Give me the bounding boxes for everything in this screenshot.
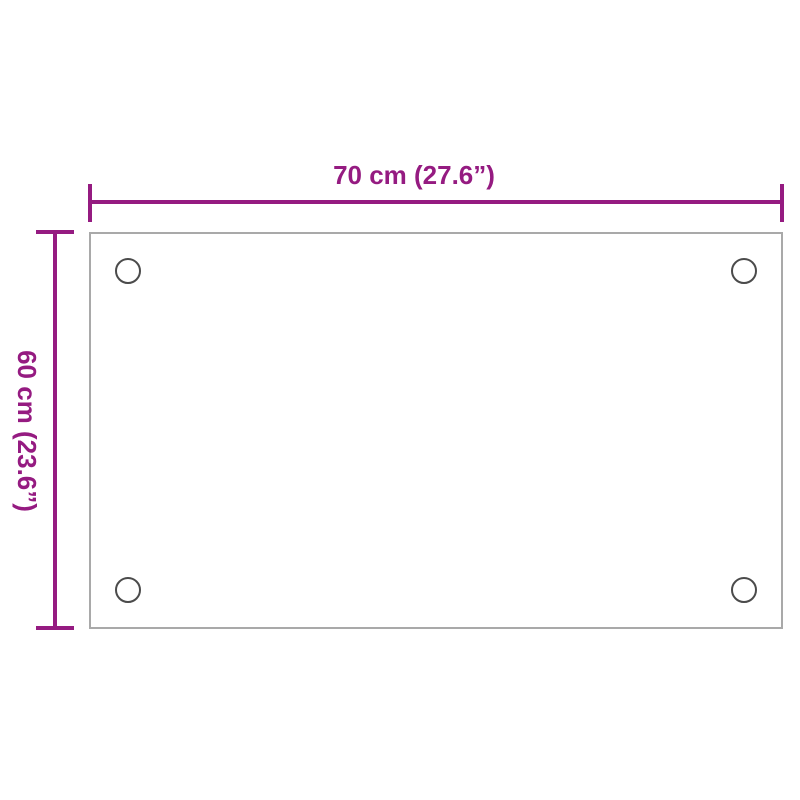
height-dimension-top-tick [36, 230, 74, 234]
mounting-hole-top-right-icon [731, 258, 757, 284]
width-dimension-right-tick [780, 184, 784, 222]
mounting-hole-top-left-icon [115, 258, 141, 284]
product-dimension-diagram: 70 cm (27.6”) 60 cm (23.6”) [0, 0, 800, 800]
height-dimension-bottom-tick [36, 626, 74, 630]
mounting-hole-bottom-right-icon [731, 577, 757, 603]
mounting-hole-bottom-left-icon [115, 577, 141, 603]
glass-panel [89, 232, 783, 629]
width-dimension-label: 70 cm (27.6”) [64, 158, 764, 192]
height-dimension-label: 60 cm (23.6”) [10, 233, 44, 629]
width-dimension-left-tick [88, 184, 92, 222]
height-dimension-line [53, 232, 57, 628]
width-dimension-line [90, 200, 782, 204]
